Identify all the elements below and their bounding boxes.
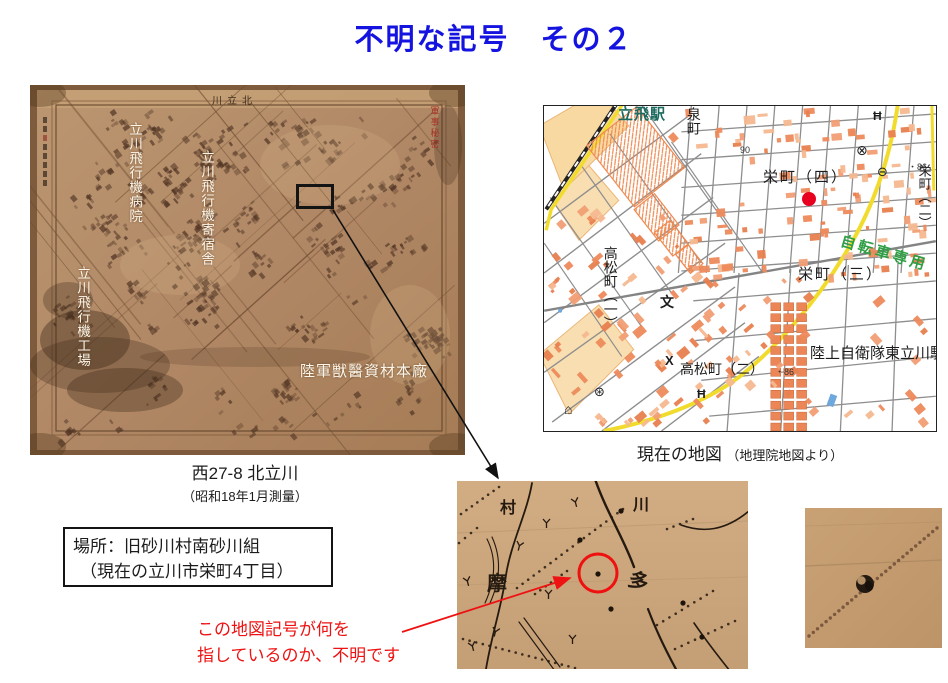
- old-map-image: 川立北 軍事秘密 立川飛行機病院 立川飛行機寄宿舎 立川飛行機工場 陸軍獣醫資材…: [30, 85, 465, 455]
- annotation-line1: この地図記号が何を: [197, 617, 400, 643]
- old-map-canvas: [30, 85, 465, 455]
- location-box-line2: （現在の立川市栄町4丁目）: [73, 560, 331, 585]
- symbol-detail-image: [805, 508, 942, 648]
- crop-char-mura: 村: [500, 494, 516, 518]
- shrine-icon: Ħ: [873, 109, 882, 123]
- elevation-86-bottom: ・86: [775, 365, 794, 378]
- label-tachikawa-aircraft-dormitory: 立川飛行機寄宿舎: [199, 150, 213, 266]
- annotation-text: この地図記号が何を 指しているのか、不明です: [197, 617, 400, 668]
- modern-map-caption: 現在の地図 （地理院地図より）: [543, 440, 937, 465]
- old-map-sheet-title: 川立北: [212, 92, 257, 107]
- highlight-rectangle: [296, 184, 334, 209]
- old-map-caption: 西27-8 北立川 （昭和18年1月測量）: [120, 459, 370, 505]
- old-map-caption-line1: 西27-8 北立川: [120, 459, 370, 484]
- crop-char-ma: 摩: [487, 567, 507, 596]
- modern-map-caption-main: 現在の地図: [637, 445, 722, 464]
- mill-icon: ⊛: [594, 384, 605, 400]
- label-army-veterinary-depot: 陸軍獣醫資材本廠: [300, 360, 428, 381]
- police-station-icon: ⊗: [856, 142, 868, 159]
- label-jsdf-higashi-tachikawa: 陸上自衛隊東立川駐: [810, 342, 937, 363]
- annotation-line2: 指しているのか、不明です: [197, 643, 400, 669]
- elevation-90: 90: [740, 145, 750, 155]
- label-izumicho: 泉町: [686, 107, 701, 135]
- location-box-line1: 場所：旧砂川村南砂川組: [73, 535, 331, 560]
- zoomed-crop-image: 村 川 摩 多: [457, 481, 748, 669]
- symbol-detail-canvas: [805, 508, 942, 648]
- label-tachihi-station: 立飛駅: [618, 105, 666, 124]
- military-secret-stamp: 軍事秘密: [429, 106, 438, 150]
- label-sakaecho-4: 栄町（四）: [763, 166, 848, 187]
- school-icon: 文: [660, 292, 674, 312]
- page-title: 不明な記号 その２: [40, 16, 948, 58]
- crop-char-kawa: 川: [633, 491, 649, 515]
- shrine-icon-2: Ħ: [697, 387, 706, 401]
- label-takamatsucho-2: 高松町（二）: [680, 359, 764, 379]
- koban-icon: X: [665, 353, 674, 368]
- bus-stop-icon: ⊖: [877, 164, 888, 180]
- modern-map-image: 立飛駅 泉町 90 栄町（四） ⊗ Ħ ⊖ ・86 栄町（二） 自転車専用 高松…: [543, 105, 937, 432]
- hut-icon: ⌂: [564, 401, 572, 417]
- location-highlight-dot: [802, 192, 816, 206]
- label-tachikawa-aircraft-factory: 立川飛行機工場: [75, 266, 89, 368]
- label-sakaecho-2: 栄町（二）: [917, 164, 931, 229]
- label-takamatsucho-1: 高松町（一）: [603, 246, 618, 330]
- modern-map-caption-sub: （地理院地図より）: [726, 448, 843, 463]
- label-tachikawa-aircraft-hospital: 立川飛行機病院: [127, 122, 141, 224]
- location-box: 場所：旧砂川村南砂川組 （現在の立川市栄町4丁目）: [63, 527, 333, 587]
- slide: { "slide": { "title": "不明な記号 その２" }, "co…: [0, 0, 948, 683]
- label-sakaecho-3: 栄町（三）: [798, 263, 883, 284]
- old-map-caption-line2: （昭和18年1月測量）: [120, 486, 370, 505]
